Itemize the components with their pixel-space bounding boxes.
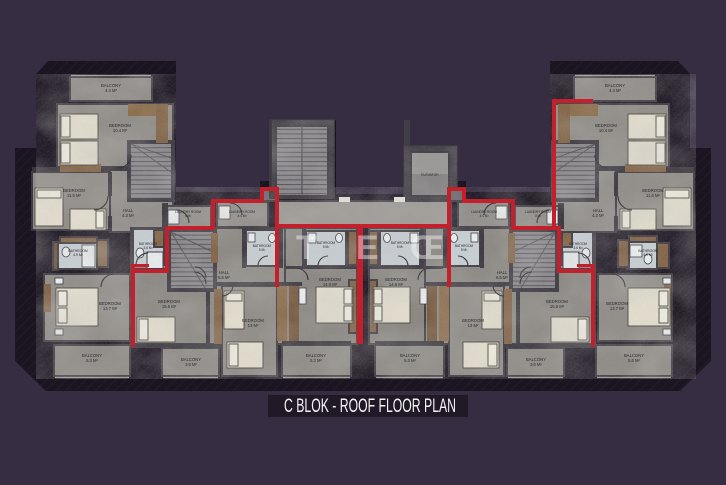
svg-text:T: T (296, 229, 317, 267)
svg-text:8.5 M²: 8.5 M² (218, 275, 230, 280)
svg-text:4.3 M²: 4.3 M² (592, 213, 604, 218)
svg-text:5 M²: 5 M² (259, 248, 265, 252)
svg-text:3.6 M²: 3.6 M² (530, 362, 542, 367)
svg-text:13 M²: 13 M² (248, 323, 259, 328)
svg-text:4.9 M²: 4.9 M² (73, 253, 83, 257)
svg-text:5.3 M²: 5.3 M² (86, 358, 98, 363)
svg-text:8.5 M²: 8.5 M² (496, 275, 508, 280)
svg-text:10.4 M²: 10.4 M² (113, 128, 128, 133)
svg-text:3.6 M²: 3.6 M² (185, 362, 197, 367)
svg-text:4 M²: 4 M² (535, 214, 541, 218)
svg-text:4.4 M²: 4.4 M² (479, 214, 488, 218)
svg-text:13.7 M²: 13.7 M² (103, 306, 118, 311)
svg-text:C BLOK - ROOF FLOOR PLAN: C BLOK - ROOF FLOOR PLAN (284, 396, 456, 417)
svg-text:4.4 M²: 4.4 M² (237, 214, 246, 218)
svg-text:5.6 M²: 5.6 M² (628, 358, 640, 363)
svg-text:11.5 M²: 11.5 M² (67, 193, 81, 198)
svg-text:ELEVATOR: ELEVATOR (421, 173, 439, 177)
svg-text:4.4 M²: 4.4 M² (609, 88, 621, 93)
svg-text:14.6 M²: 14.6 M² (389, 282, 404, 287)
svg-text:13 M²: 13 M² (468, 323, 479, 328)
svg-text:E: E (356, 229, 379, 267)
svg-text:10.4 M²: 10.4 M² (599, 128, 614, 133)
svg-text:14.6 M²: 14.6 M² (323, 282, 338, 287)
svg-text:3.6 M²: 3.6 M² (573, 246, 582, 250)
svg-text:11.5 M²: 11.5 M² (646, 193, 660, 198)
svg-text:13.7 M²: 13.7 M² (610, 306, 625, 311)
svg-text:4.4 M²: 4.4 M² (105, 88, 117, 93)
svg-text:5.3 M²: 5.3 M² (404, 358, 416, 363)
svg-text:4.3 M²: 4.3 M² (122, 213, 134, 218)
svg-text:5 M²: 5 M² (397, 245, 403, 249)
svg-text:Œ: Œ (410, 229, 444, 267)
svg-text:4.9 M²: 4.9 M² (643, 253, 653, 257)
svg-text:5 M²: 5 M² (461, 248, 467, 252)
svg-text:5.3 M²: 5.3 M² (310, 358, 322, 363)
svg-text:15.5 M²: 15.5 M² (162, 304, 177, 309)
svg-text:5 M²: 5 M² (323, 245, 329, 249)
svg-text:3.6 M²: 3.6 M² (143, 246, 152, 250)
svg-text:4 M²: 4 M² (185, 214, 191, 218)
svg-text:15.5 M²: 15.5 M² (550, 304, 565, 309)
